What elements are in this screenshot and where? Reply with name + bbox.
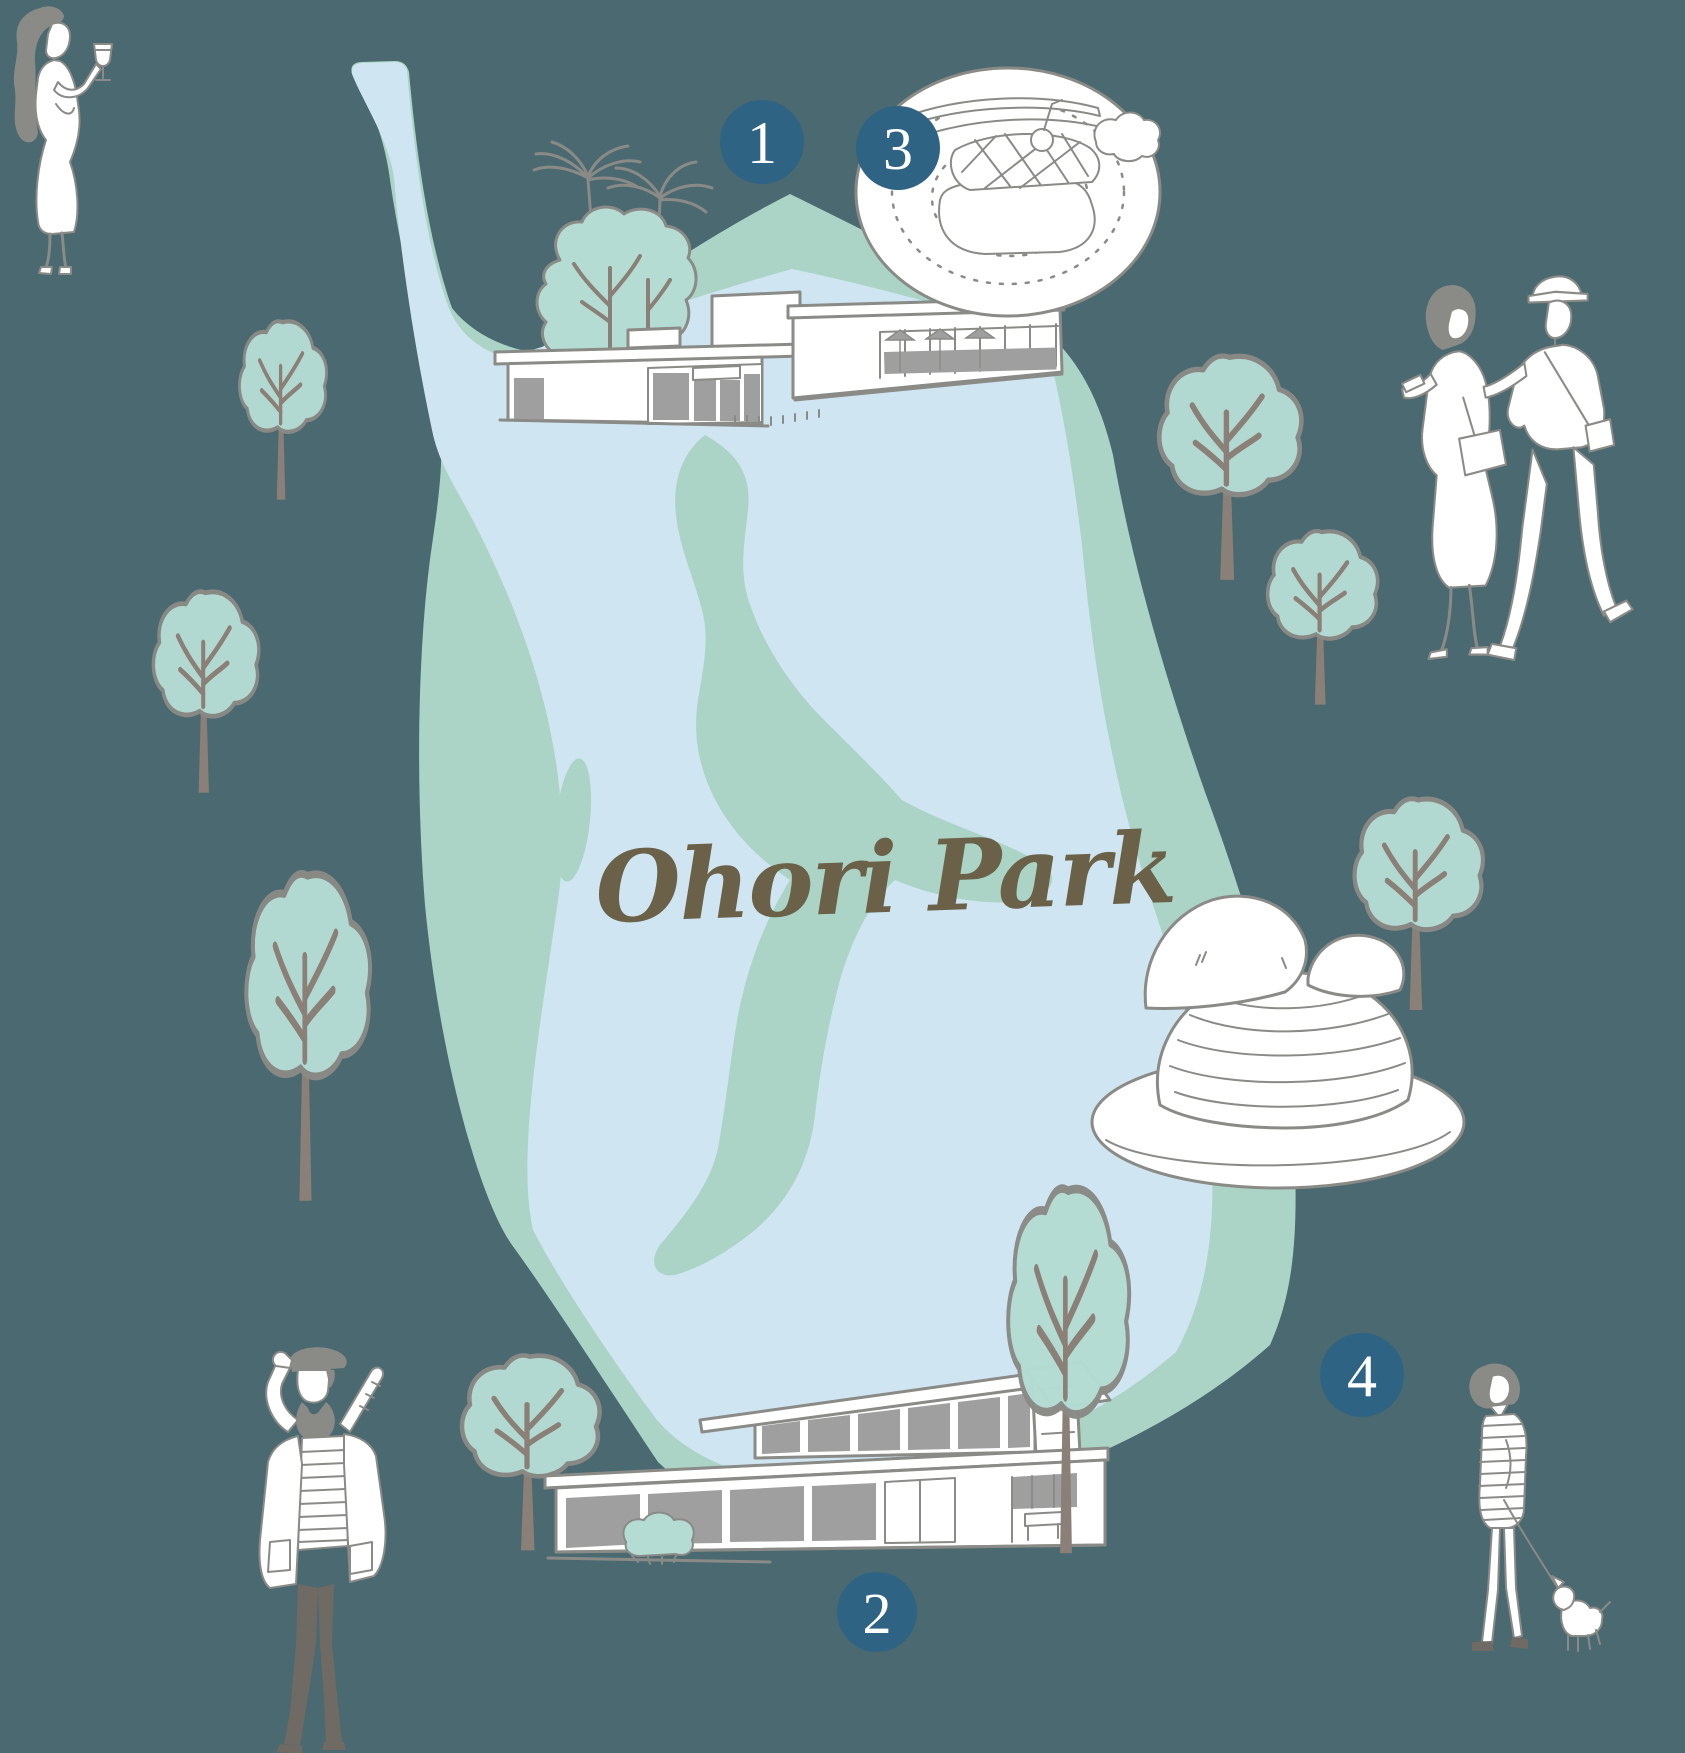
grilled-dish-plate (856, 68, 1160, 316)
marker-3[interactable]: 3 (856, 106, 940, 190)
park-title: Ohori Park (594, 811, 1177, 946)
marker-4[interactable]: 4 (1320, 1333, 1404, 1417)
marker-3-number: 3 (883, 116, 913, 182)
marker-1-number: 1 (747, 110, 777, 176)
marker-1[interactable]: 1 (720, 100, 804, 184)
tomato-pick (1031, 129, 1053, 151)
marker-2-number: 2 (863, 1581, 892, 1646)
garnish (1094, 113, 1160, 162)
bush (623, 1513, 693, 1557)
marker-4-number: 4 (1347, 1343, 1377, 1409)
marker-2[interactable]: 2 (837, 1572, 917, 1652)
bread-basket (939, 180, 1095, 254)
ohori-park-map: Ohori Park (0, 0, 1685, 1753)
